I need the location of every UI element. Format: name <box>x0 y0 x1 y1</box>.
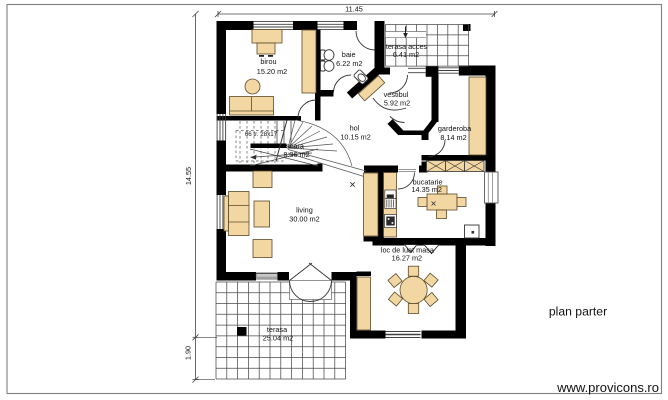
svg-text:8.36 m2: 8.36 m2 <box>283 150 309 159</box>
svg-text:14.55: 14.55 <box>184 167 193 185</box>
svg-text:5.92 m2: 5.92 m2 <box>384 99 410 108</box>
svg-text:www.provicons.ro: www.provicons.ro <box>556 380 659 395</box>
svg-text:15.20 m2: 15.20 m2 <box>257 67 287 76</box>
svg-text:16.27 m2: 16.27 m2 <box>392 254 422 263</box>
svg-text:66 tr. 28x17: 66 tr. 28x17 <box>245 131 278 138</box>
svg-text:8.14 m2: 8.14 m2 <box>440 133 466 142</box>
svg-text:30.00 m2: 30.00 m2 <box>289 215 319 224</box>
svg-text:6.22 m2: 6.22 m2 <box>336 59 362 68</box>
svg-text:hol: hol <box>350 124 360 133</box>
svg-text:11.45: 11.45 <box>345 5 363 14</box>
svg-text:6.41 m2: 6.41 m2 <box>393 50 419 59</box>
svg-text:baie: baie <box>342 50 356 59</box>
svg-text:10.15 m2: 10.15 m2 <box>340 133 370 142</box>
svg-text:1.90: 1.90 <box>184 346 193 360</box>
svg-text:birou: birou <box>260 57 276 66</box>
svg-text:25.04 m2: 25.04 m2 <box>263 334 293 343</box>
svg-text:living: living <box>296 205 313 214</box>
svg-text:plan parter: plan parter <box>549 305 607 319</box>
svg-text:garderoba: garderoba <box>438 124 472 133</box>
svg-text:terasa: terasa <box>267 325 288 334</box>
svg-text:14.35 m2: 14.35 m2 <box>411 185 441 194</box>
